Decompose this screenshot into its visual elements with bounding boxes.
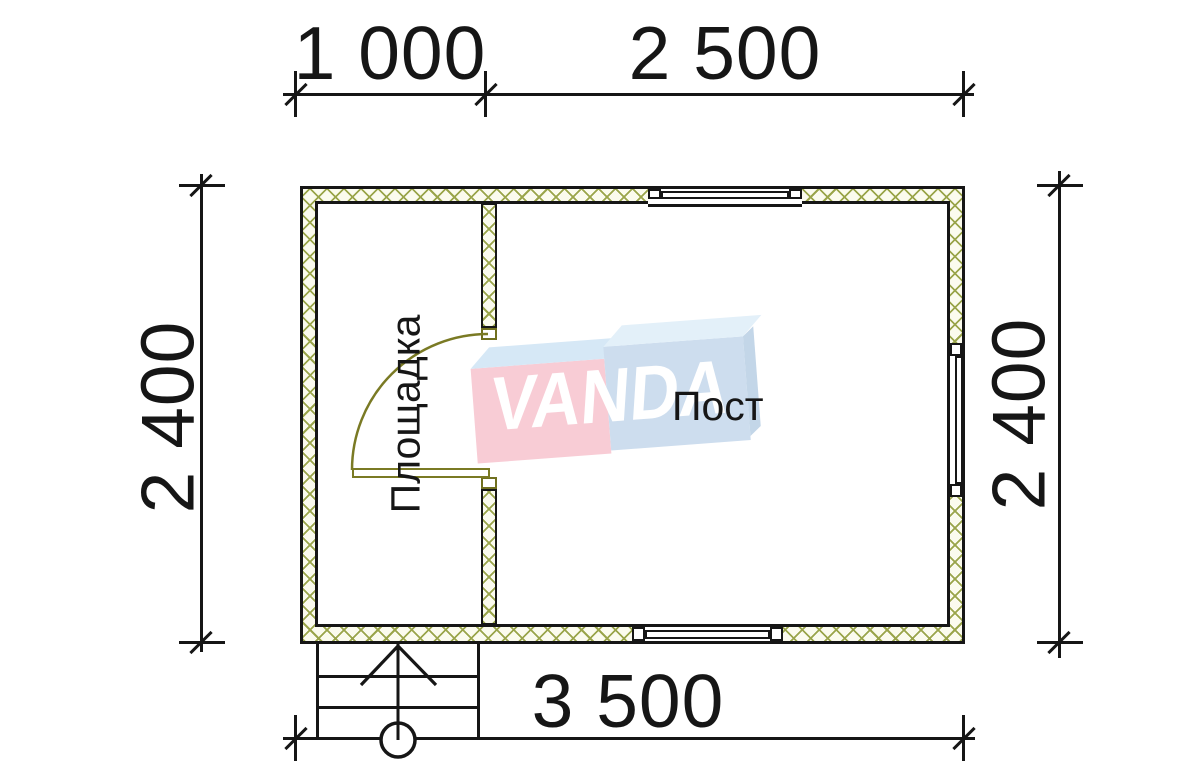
window-right xyxy=(947,343,965,497)
room-label-porch: Площадка xyxy=(386,315,427,514)
entrance-stairs xyxy=(316,643,480,740)
window-top xyxy=(648,186,802,207)
dimension-label-top-right: 2 500 xyxy=(629,16,822,91)
stair-step xyxy=(316,706,480,709)
window-glazing xyxy=(645,630,770,639)
floor-plan-drawing: { "drawing": { "type": "architectural fl… xyxy=(0,0,1200,772)
window-jamb xyxy=(648,189,661,199)
dimension-label-bottom: 3 500 xyxy=(532,664,725,739)
dimension-label-right: 2 400 xyxy=(982,318,1057,511)
stair-step xyxy=(316,675,480,678)
window-glazing xyxy=(955,356,963,484)
window-jamb xyxy=(789,189,802,199)
dimension-label-left: 2 400 xyxy=(131,321,206,514)
window-jamb xyxy=(632,627,645,641)
door-jamb-upper xyxy=(481,328,497,340)
window-jamb xyxy=(770,627,783,641)
partition-wall-upper xyxy=(481,203,497,328)
dimension-label-top-left: 1 000 xyxy=(294,16,487,91)
window-jamb xyxy=(950,343,962,356)
door-jamb-lower xyxy=(481,477,497,489)
window-jamb xyxy=(950,484,962,497)
window-bottom xyxy=(632,624,783,644)
room-label-main: Пост xyxy=(672,386,764,427)
partition-wall-lower xyxy=(481,489,497,625)
window-glazing xyxy=(661,191,789,199)
